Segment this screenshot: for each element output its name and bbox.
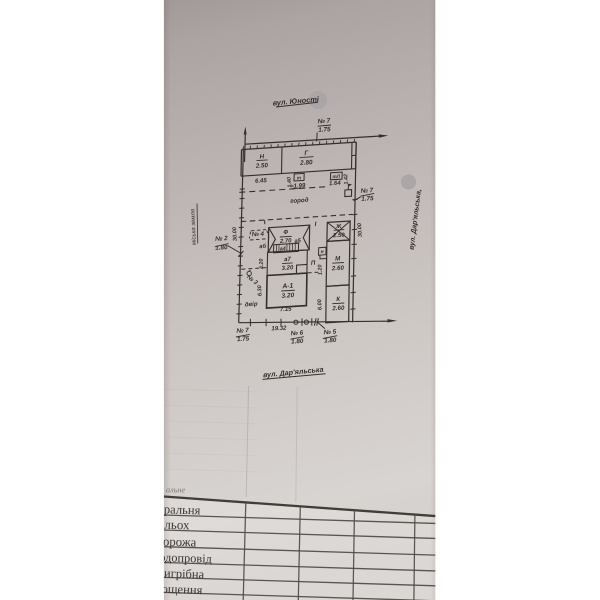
svg-text:30.00: 30.00 bbox=[357, 222, 364, 237]
svg-text:19.32: 19.32 bbox=[271, 326, 287, 333]
svg-text:аб: аб bbox=[259, 243, 267, 250]
svg-text:1.42: 1.42 bbox=[343, 174, 350, 185]
svg-text:1.75: 1.75 bbox=[237, 335, 250, 343]
svg-text:6.30: 6.30 bbox=[257, 284, 264, 296]
svg-text:2.50: 2.50 bbox=[255, 162, 269, 170]
svg-text:3.20: 3.20 bbox=[281, 265, 294, 272]
svg-text:льох: льох bbox=[164, 517, 190, 533]
svg-text:4.20: 4.20 bbox=[259, 258, 266, 270]
svg-text:2.60: 2.60 bbox=[331, 305, 345, 313]
svg-text:Ж: Ж bbox=[335, 224, 342, 230]
svg-text:№ 6: № 6 bbox=[290, 330, 303, 338]
svg-text:1.64: 1.64 bbox=[329, 181, 342, 188]
svg-text:№ 7: № 7 bbox=[236, 327, 249, 335]
svg-text:2.80: 2.80 bbox=[299, 159, 313, 167]
svg-text:вигрібна: вигрібна bbox=[158, 566, 205, 581]
svg-text:№ 5: № 5 bbox=[323, 329, 336, 337]
svg-text:1.80: 1.80 bbox=[291, 338, 304, 346]
svg-text:н: н bbox=[321, 249, 324, 255]
svg-text:7.15: 7.15 bbox=[280, 307, 293, 314]
svg-text:1.80: 1.80 bbox=[324, 337, 337, 345]
svg-text:А-1: А-1 bbox=[281, 283, 294, 291]
svg-text:mЛ: mЛ bbox=[332, 174, 341, 181]
svg-text:30.00: 30.00 bbox=[232, 226, 239, 241]
svg-text:Ф: Ф bbox=[283, 230, 288, 236]
svg-text:№ 4: № 4 bbox=[252, 231, 265, 239]
svg-text:город: город bbox=[290, 197, 309, 205]
svg-text:6.00: 6.00 bbox=[317, 298, 324, 310]
svg-text:1.80: 1.80 bbox=[215, 244, 228, 252]
svg-text:3.20: 3.20 bbox=[281, 292, 294, 300]
svg-text:№ 7: № 7 bbox=[317, 118, 330, 126]
svg-text:2.60: 2.60 bbox=[331, 265, 345, 273]
svg-text:альне: альне bbox=[166, 485, 186, 494]
svg-text:а7: а7 bbox=[284, 257, 292, 263]
svg-text:1.75: 1.75 bbox=[318, 126, 331, 134]
svg-text:2.50: 2.50 bbox=[332, 233, 346, 240]
svg-text:двір: двір bbox=[245, 302, 258, 309]
svg-text:№ 2: № 2 bbox=[215, 235, 228, 243]
svg-text:6.45: 6.45 bbox=[255, 178, 268, 185]
svg-text:1.75: 1.75 bbox=[361, 195, 374, 203]
svg-text:1.20: 1.20 bbox=[317, 264, 324, 275]
